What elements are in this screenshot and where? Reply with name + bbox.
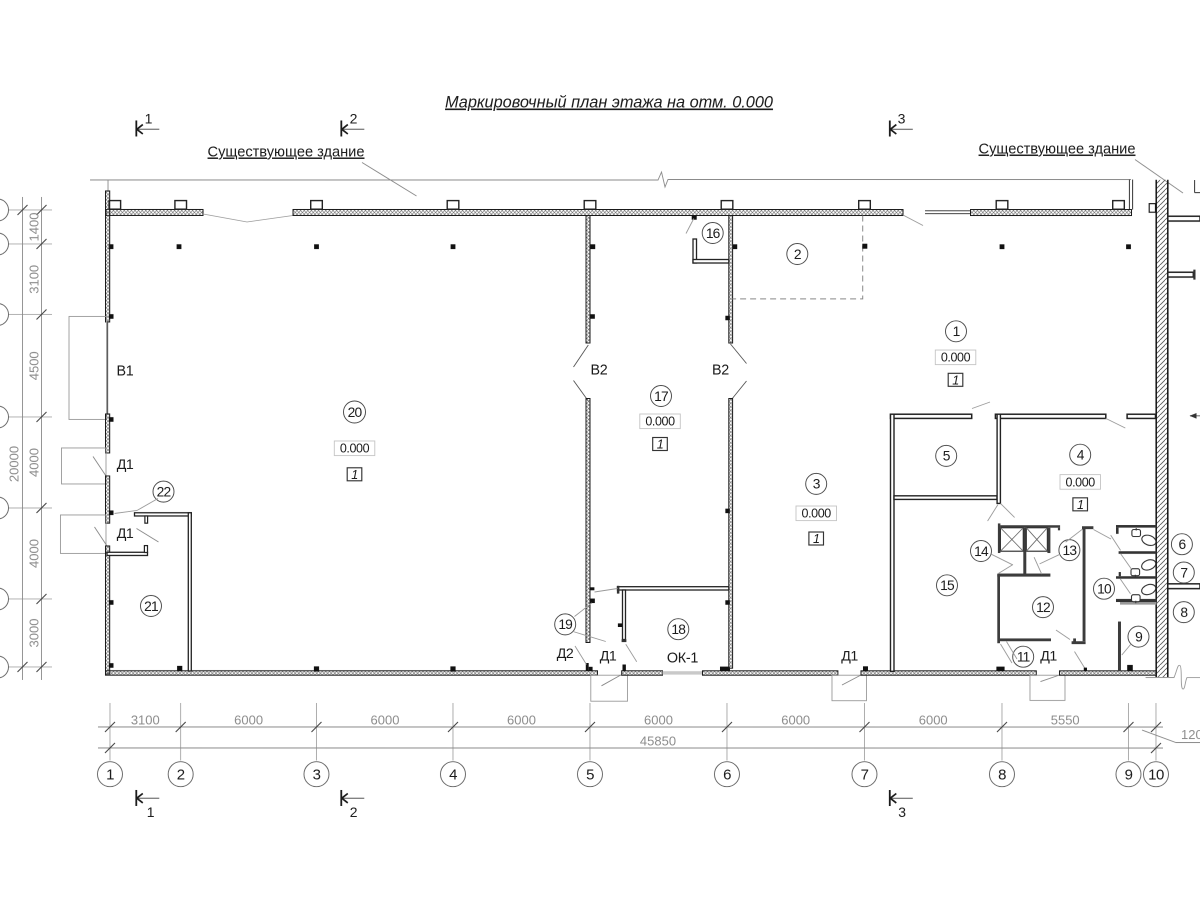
svg-text:6: 6 bbox=[723, 767, 731, 784]
svg-text:15: 15 bbox=[940, 578, 955, 593]
svg-text:6000: 6000 bbox=[781, 713, 810, 728]
svg-text:1: 1 bbox=[145, 110, 153, 126]
svg-text:8: 8 bbox=[998, 767, 1006, 784]
svg-text:5: 5 bbox=[943, 449, 951, 464]
svg-text:1400: 1400 bbox=[27, 212, 42, 241]
svg-text:14: 14 bbox=[974, 544, 989, 559]
svg-text:1: 1 bbox=[106, 767, 114, 784]
svg-text:Д1: Д1 bbox=[841, 648, 858, 664]
svg-text:2: 2 bbox=[350, 804, 358, 820]
svg-text:1: 1 bbox=[953, 324, 960, 339]
svg-text:20: 20 bbox=[348, 405, 363, 420]
svg-text:0.000: 0.000 bbox=[645, 415, 675, 429]
svg-text:4000: 4000 bbox=[27, 448, 42, 477]
svg-text:6000: 6000 bbox=[919, 713, 948, 728]
svg-text:0.000: 0.000 bbox=[802, 507, 832, 521]
svg-text:ОК-1: ОК-1 bbox=[667, 651, 698, 667]
svg-text:2: 2 bbox=[794, 247, 801, 262]
svg-text:4: 4 bbox=[449, 767, 457, 784]
svg-text:В2: В2 bbox=[712, 363, 729, 379]
svg-text:18: 18 bbox=[671, 622, 686, 637]
svg-text:45850: 45850 bbox=[640, 733, 676, 748]
svg-text:Д2: Д2 bbox=[557, 646, 574, 662]
svg-text:10: 10 bbox=[1148, 767, 1164, 784]
svg-text:8: 8 bbox=[1180, 605, 1188, 620]
svg-text:3000: 3000 bbox=[27, 618, 42, 647]
svg-text:1: 1 bbox=[657, 438, 664, 452]
svg-text:0.000: 0.000 bbox=[941, 351, 971, 365]
svg-text:1: 1 bbox=[952, 373, 959, 387]
svg-text:9: 9 bbox=[1125, 767, 1133, 784]
svg-text:Маркировочный план этажа на от: Маркировочный план этажа на отм. 0.000 bbox=[445, 93, 773, 111]
svg-text:9: 9 bbox=[1135, 629, 1143, 644]
svg-text:4: 4 bbox=[1077, 448, 1085, 463]
svg-text:В1: В1 bbox=[117, 363, 134, 379]
svg-text:1200: 1200 bbox=[1181, 727, 1200, 742]
svg-text:2: 2 bbox=[350, 110, 358, 126]
svg-text:Д1: Д1 bbox=[117, 457, 134, 473]
svg-text:3: 3 bbox=[813, 477, 821, 492]
svg-text:13: 13 bbox=[1063, 543, 1078, 558]
svg-text:Д1: Д1 bbox=[117, 526, 134, 542]
svg-text:1: 1 bbox=[147, 804, 155, 820]
svg-text:4500: 4500 bbox=[27, 351, 42, 380]
svg-text:11: 11 bbox=[1017, 650, 1030, 665]
svg-text:10: 10 bbox=[1097, 582, 1112, 597]
svg-text:0.000: 0.000 bbox=[1066, 475, 1096, 489]
svg-text:3: 3 bbox=[898, 804, 906, 820]
svg-text:В2: В2 bbox=[591, 362, 608, 378]
svg-text:20000: 20000 bbox=[7, 446, 22, 482]
svg-text:6000: 6000 bbox=[507, 713, 536, 728]
svg-text:6000: 6000 bbox=[234, 713, 263, 728]
svg-text:3: 3 bbox=[313, 767, 321, 784]
svg-text:16: 16 bbox=[706, 226, 721, 241]
svg-text:Д1: Д1 bbox=[1040, 649, 1057, 665]
svg-text:5550: 5550 bbox=[1051, 713, 1080, 728]
svg-text:12: 12 bbox=[1036, 600, 1050, 615]
svg-text:2: 2 bbox=[177, 767, 185, 784]
svg-text:7: 7 bbox=[861, 767, 869, 784]
svg-text:1: 1 bbox=[813, 532, 820, 546]
svg-text:17: 17 bbox=[654, 389, 668, 404]
svg-text:7: 7 bbox=[1180, 565, 1187, 580]
svg-text:6000: 6000 bbox=[644, 713, 673, 728]
svg-text:1: 1 bbox=[1077, 498, 1084, 512]
svg-text:6000: 6000 bbox=[371, 713, 400, 728]
svg-text:Существующее здание: Существующее здание bbox=[208, 144, 365, 160]
svg-text:5: 5 bbox=[586, 767, 594, 784]
svg-text:3100: 3100 bbox=[131, 713, 160, 728]
svg-text:3: 3 bbox=[898, 111, 906, 127]
svg-text:1: 1 bbox=[351, 468, 358, 482]
svg-text:Д1: Д1 bbox=[600, 649, 617, 665]
svg-text:19: 19 bbox=[558, 617, 573, 632]
svg-text:0.000: 0.000 bbox=[340, 442, 370, 456]
svg-text:6: 6 bbox=[1178, 537, 1186, 552]
svg-text:22: 22 bbox=[157, 484, 171, 499]
svg-text:Существующее здание: Существующее здание bbox=[979, 142, 1136, 158]
svg-text:21: 21 bbox=[144, 599, 158, 614]
svg-text:3100: 3100 bbox=[27, 265, 42, 294]
svg-text:4000: 4000 bbox=[27, 539, 42, 568]
